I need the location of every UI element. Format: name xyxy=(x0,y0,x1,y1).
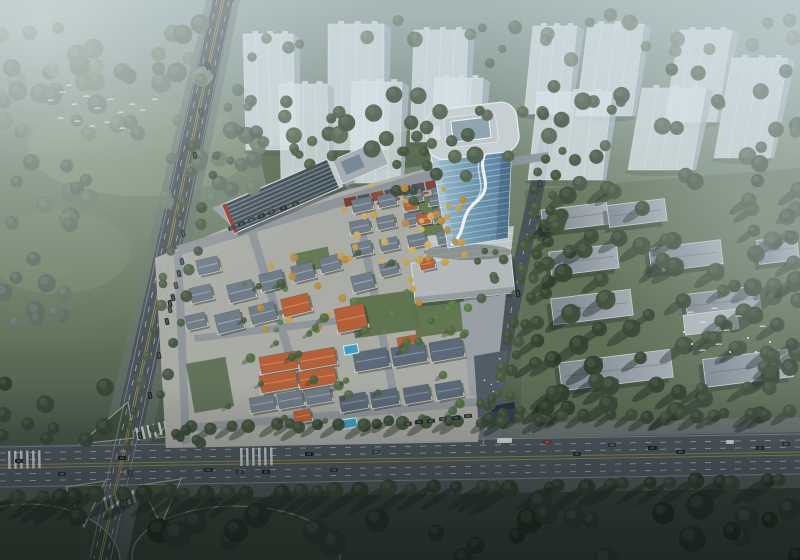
scene-svg xyxy=(0,0,800,560)
aerial-rendering xyxy=(0,0,800,560)
layer-fog xyxy=(0,0,800,560)
atmosphere-tint xyxy=(0,0,800,560)
